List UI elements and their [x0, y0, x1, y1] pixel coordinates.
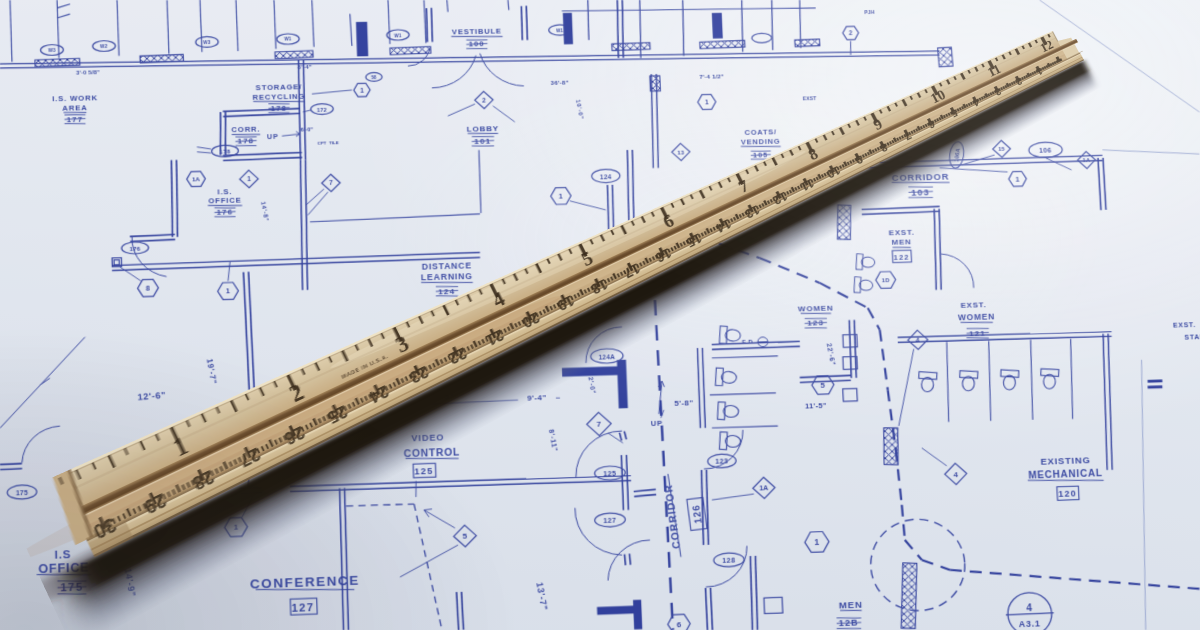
svg-text:2: 2	[482, 98, 486, 105]
svg-text:1: 1	[814, 537, 819, 547]
svg-text:AREA: AREA	[62, 103, 87, 112]
svg-text:I.S. WORK: I.S. WORK	[52, 94, 98, 104]
svg-text:3'-0 5/8": 3'-0 5/8"	[76, 70, 100, 76]
svg-text:36'-8": 36'-8"	[551, 81, 569, 87]
svg-text:STAIR: STAIR	[1184, 334, 1200, 341]
svg-text:1: 1	[705, 100, 709, 107]
svg-text:4: 4	[1026, 603, 1033, 614]
svg-text:58: 58	[371, 76, 377, 81]
svg-text:W3: W3	[48, 48, 56, 53]
svg-text:LEARNING: LEARNING	[421, 272, 473, 283]
svg-text:22'-6": 22'-6"	[825, 343, 836, 367]
svg-text:W3: W3	[203, 40, 211, 45]
svg-text:1A: 1A	[759, 485, 768, 492]
svg-text:W1: W1	[284, 37, 292, 42]
svg-text:123: 123	[715, 459, 728, 466]
svg-text:W2: W2	[100, 44, 108, 49]
svg-text:VENDING: VENDING	[741, 137, 781, 146]
svg-text:6'-0": 6'-0"	[301, 127, 314, 133]
svg-text:1A: 1A	[1083, 158, 1091, 164]
svg-text:MEN: MEN	[891, 238, 911, 247]
svg-text:PJH: PJH	[864, 10, 875, 16]
svg-text:172: 172	[317, 108, 327, 114]
svg-text:UP: UP	[267, 134, 279, 141]
svg-text:8'-11": 8'-11"	[547, 429, 558, 453]
svg-text:F.D: F.D	[742, 340, 754, 346]
svg-text:128: 128	[722, 558, 735, 565]
svg-text:11'-5": 11'-5"	[805, 401, 827, 410]
svg-text:W1: W1	[556, 28, 564, 33]
svg-text:EXST: EXST	[803, 96, 817, 102]
svg-text:120: 120	[1058, 489, 1077, 499]
svg-text:7: 7	[596, 420, 601, 429]
svg-text:1: 1	[226, 289, 230, 296]
svg-text:WOMEN: WOMEN	[798, 304, 834, 314]
svg-text:RECYCLING: RECYCLING	[252, 92, 305, 102]
svg-text:8: 8	[146, 286, 150, 293]
svg-text:COATS/: COATS/	[744, 128, 777, 137]
svg-text:A3.1: A3.1	[1018, 619, 1041, 630]
svg-text:15: 15	[998, 147, 1005, 153]
svg-text:125: 125	[603, 471, 616, 478]
svg-text:7: 7	[329, 180, 333, 187]
svg-text:6: 6	[676, 620, 681, 629]
svg-text:TILE: TILE	[329, 140, 339, 145]
svg-text:EXST.: EXST.	[1173, 322, 1196, 329]
svg-text:1: 1	[559, 194, 563, 201]
svg-text:13'-7": 13'-7"	[534, 582, 549, 612]
svg-text:WOMEN: WOMEN	[958, 312, 996, 323]
svg-text:1: 1	[1015, 177, 1019, 184]
svg-text:1: 1	[360, 87, 364, 94]
svg-text:1D: 1D	[882, 278, 891, 284]
svg-text:127: 127	[603, 518, 616, 525]
svg-text:1A: 1A	[192, 177, 201, 183]
svg-text:2: 2	[849, 31, 853, 38]
svg-text:14'-8": 14'-8"	[259, 201, 269, 222]
svg-text:EXST.: EXST.	[960, 301, 986, 310]
svg-text:MEN: MEN	[839, 600, 863, 612]
svg-text:106: 106	[1039, 148, 1052, 155]
svg-text:5: 5	[462, 532, 467, 541]
svg-text:19'-7": 19'-7"	[205, 358, 219, 385]
svg-text:2'-0": 2'-0"	[586, 377, 596, 395]
svg-text:13: 13	[677, 150, 685, 156]
svg-text:VESTIBULE: VESTIBULE	[452, 27, 502, 37]
svg-text:EXST.: EXST.	[888, 228, 914, 237]
svg-text:LOBBY: LOBBY	[466, 124, 499, 133]
svg-text:127: 127	[291, 602, 314, 615]
svg-text:CORR.: CORR.	[231, 125, 260, 134]
svg-text:7'-4 1/2": 7'-4 1/2"	[699, 75, 724, 81]
svg-text:124: 124	[600, 174, 612, 181]
svg-text:10'-0": 10'-0"	[574, 99, 584, 120]
svg-text:122: 122	[893, 253, 909, 262]
svg-text:5: 5	[820, 381, 825, 390]
svg-text:176: 176	[129, 246, 141, 252]
svg-text:OFFICE: OFFICE	[208, 196, 241, 206]
svg-text:1: 1	[247, 176, 251, 183]
svg-text:CPT: CPT	[317, 141, 326, 146]
svg-text:5'-8": 5'-8"	[674, 399, 694, 408]
svg-text:12'-6": 12'-6"	[137, 390, 166, 402]
svg-text:W1: W1	[394, 33, 402, 38]
svg-text:4: 4	[916, 338, 920, 345]
svg-text:8'-4": 8'-4"	[297, 65, 312, 71]
svg-text:DISTANCE: DISTANCE	[422, 261, 472, 272]
svg-text:125: 125	[414, 466, 433, 476]
svg-text:EXISTING: EXISTING	[1040, 455, 1091, 467]
svg-text:4: 4	[953, 470, 958, 479]
svg-text:I.S.: I.S.	[217, 187, 232, 196]
